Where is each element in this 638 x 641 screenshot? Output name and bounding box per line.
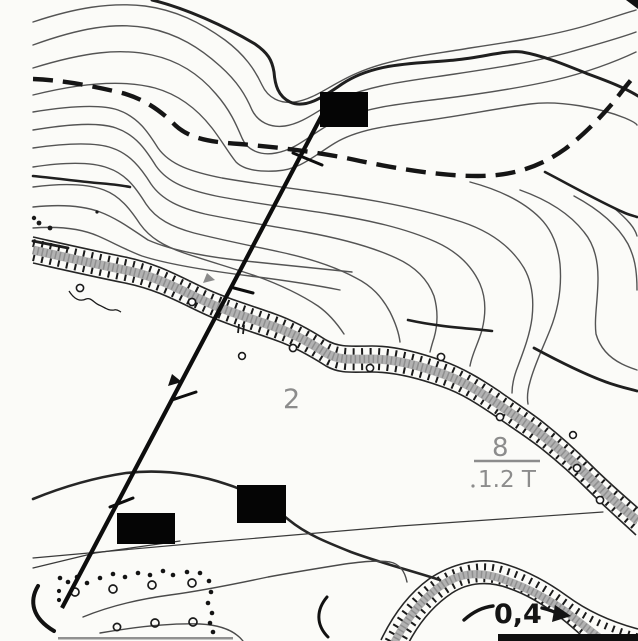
bottom-edge-black <box>498 634 638 641</box>
survey-arrowhead-faint <box>203 273 215 283</box>
redaction-box-top <box>320 92 368 127</box>
label-speck <box>471 484 474 487</box>
corner-contour-wedge <box>626 0 638 9</box>
scan-edges <box>58 634 638 641</box>
index-contour-top <box>152 0 638 104</box>
survey-line <box>62 100 330 608</box>
crossing-numerator-label: 8 <box>492 433 509 463</box>
gully-symbols <box>32 210 604 503</box>
hill-index-contour <box>33 472 440 580</box>
index-contour-se <box>534 348 637 391</box>
survey-line-group <box>62 100 330 608</box>
orchard-contour-upper <box>83 561 407 617</box>
gully-depth-label: 2 <box>283 384 300 415</box>
erosion-squiggle <box>69 291 121 312</box>
gully-bank-top <box>33 237 638 508</box>
index-contours <box>33 0 638 391</box>
stream-speed-label: 0,4 <box>494 599 542 630</box>
crossing-denominator-label: 1.2 T <box>478 467 537 493</box>
map-canvas: 2 8 1.2 T 0,4 <box>0 0 638 641</box>
redaction-box-left <box>117 513 175 544</box>
bottom-edge-gray <box>58 637 233 640</box>
fence-line-short <box>33 541 180 568</box>
topographic-map: 2 8 1.2 T 0,4 <box>0 0 638 641</box>
bracket-left <box>33 586 54 631</box>
tree-circles <box>71 579 197 631</box>
redaction-box-middle <box>237 485 286 523</box>
stream-stipple <box>33 250 638 521</box>
stream-band <box>33 250 638 521</box>
bracket-mid <box>319 597 328 637</box>
